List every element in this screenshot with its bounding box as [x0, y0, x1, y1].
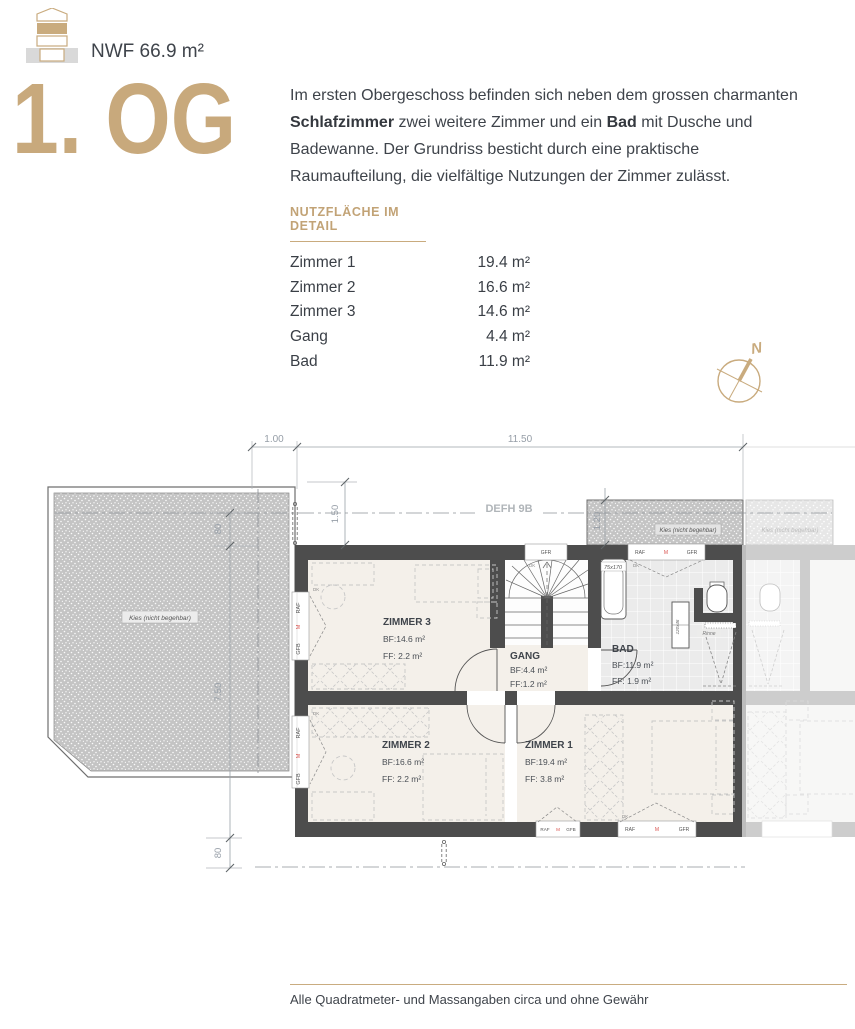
dim-upper-inset: 1.50: [330, 505, 341, 524]
vanity-size-label: 120x46: [675, 619, 680, 634]
area-table-rows: Zimmer 1 19.4 m² Zimmer 2 16.6 m² Zimmer…: [290, 254, 530, 377]
gravel-strip-right: Kies (nicht begehbar) Kies (nicht begehb…: [587, 500, 833, 545]
room-name: ZIMMER 1: [525, 740, 573, 751]
gravel-label: Kies (nicht begehbar): [129, 615, 191, 622]
row-value: 19.4 m²: [477, 254, 530, 272]
window-label-m: M: [296, 624, 302, 629]
intro-part2: zwei weitere Zimmer und ein: [394, 114, 607, 131]
intro-paragraph: Im ersten Obergeschoss befinden sich neb…: [290, 82, 814, 190]
icon-floor-2: [37, 36, 67, 46]
window-label-dk: DK: [313, 711, 319, 716]
dim-left-bottom: 80: [213, 848, 224, 859]
window-label-raf: RAF: [296, 727, 302, 739]
axis-label: DEFH 9B: [485, 503, 532, 515]
icon-roof: [37, 8, 67, 21]
window-label-m: M: [296, 753, 302, 758]
dim-left-depth: 7.50: [213, 683, 224, 702]
intro-bold-schlafzimmer: Schlafzimmer: [290, 114, 394, 131]
room-bf: BF:16.6 m²: [382, 757, 424, 767]
window-label-gfr: GFR: [541, 550, 552, 556]
gravel-label: Kies (nicht begehbar): [659, 528, 716, 534]
window-label-gfb: GFB: [296, 643, 302, 655]
row-value: 4.4 m²: [486, 328, 530, 346]
nwf-area-label: NWF 66.9 m²: [91, 41, 204, 63]
window-label-m: M: [655, 827, 659, 833]
room-name: GANG: [510, 651, 540, 662]
row-value: 16.6 m²: [477, 279, 530, 297]
dim-right-inset: 1.20: [592, 512, 603, 531]
bathtub-size-label: 75x170: [604, 565, 623, 571]
icon-floor-3: [40, 49, 64, 61]
row-value: 14.6 m²: [477, 303, 530, 321]
row-label: Zimmer 1: [290, 254, 355, 272]
window-label-raf: RAF: [540, 827, 549, 832]
dim-top-width: 11.50: [508, 434, 533, 445]
compass-north-icon: N: [700, 330, 790, 420]
intro-part1: Im ersten Obergeschoss befinden sich neb…: [290, 87, 798, 104]
window-label-dk: DK: [313, 587, 319, 592]
north-letter: N: [750, 339, 765, 358]
footer-rule: [290, 984, 847, 985]
row-value: 11.9 m²: [479, 353, 530, 371]
wardrobe: [312, 664, 405, 689]
row-label: Zimmer 3: [290, 303, 355, 321]
window-label-dk: DK: [633, 563, 639, 568]
shower-drain: [705, 623, 736, 628]
window-label-gfr: GFR: [679, 827, 690, 833]
neighbour-unit-faded: [742, 545, 855, 837]
wardrobe: [585, 715, 623, 820]
room-name: ZIMMER 2: [382, 740, 430, 751]
table-row: Gang 4.4 m²: [290, 328, 530, 353]
row-label: Bad: [290, 353, 318, 371]
window-label-dk: DK: [622, 814, 628, 819]
row-label: Zimmer 2: [290, 279, 355, 297]
window-label-raf: RAF: [296, 602, 302, 614]
window-label-m: M: [664, 550, 668, 556]
table-row: Zimmer 2 16.6 m²: [290, 279, 530, 304]
toilet: [707, 585, 727, 612]
table-row: Zimmer 3 14.6 m²: [290, 303, 530, 328]
window-label-raf: RAF: [635, 550, 645, 556]
icon-highlighted-floor: [37, 23, 67, 34]
wardrobe: [312, 708, 429, 737]
gravel-terrace: Kies (nicht begehbar): [48, 487, 295, 777]
room-name: ZIMMER 3: [383, 617, 431, 628]
gravel-label-faded: Kies (nicht begehbar): [761, 528, 818, 534]
window-label-raf: RAF: [625, 827, 635, 833]
window-label-m: M: [556, 827, 560, 832]
room-ff: FF: 2.2 m²: [383, 651, 422, 661]
window-label-gfb: GFB: [566, 827, 575, 832]
room-ff: FF: 3.8 m²: [525, 774, 564, 784]
row-label: Gang: [290, 328, 328, 346]
window-label-gfb: GFB: [296, 773, 302, 785]
dim-top-offset: 1.00: [264, 434, 284, 445]
building-storey-icon: [26, 8, 82, 66]
dim-left-top: 80: [213, 524, 224, 535]
room-ff: FF: 1.9 m²: [612, 676, 651, 686]
floor-plan: Kies (nicht begehbar) Kies (nicht begehb…: [0, 420, 855, 980]
table-row: Zimmer 1 19.4 m²: [290, 254, 530, 279]
room-ff: FF: 2.2 m²: [382, 774, 421, 784]
drain-label: Rinne: [702, 631, 715, 637]
footer-disclaimer: Alle Quadratmeter- und Massangaben circa…: [290, 992, 648, 1007]
north-needle: [739, 359, 751, 381]
table-row: Bad 11.9 m²: [290, 353, 530, 378]
room-bf: BF:19.4 m²: [525, 757, 567, 767]
window-label-dk: DK: [529, 563, 535, 568]
room-ff: FF:1.2 m²: [510, 679, 547, 689]
area-table-heading: NUTZFLÄCHE IM DETAIL: [290, 205, 426, 242]
room-bf: BF:11.9 m²: [612, 660, 654, 670]
window-label-gfr: GFR: [687, 550, 698, 556]
floor-title: 1. OG: [12, 72, 236, 167]
intro-bold-bad: Bad: [607, 114, 637, 131]
room-name: BAD: [612, 644, 634, 655]
room-bf: BF:4.4 m²: [510, 665, 547, 675]
floorplan-page: NWF 66.9 m² 1. OG Im ersten Obergeschoss…: [0, 0, 855, 1029]
room-bf: BF:14.6 m²: [383, 634, 425, 644]
area-table: NUTZFLÄCHE IM DETAIL Zimmer 1 19.4 m² Zi…: [290, 205, 530, 377]
